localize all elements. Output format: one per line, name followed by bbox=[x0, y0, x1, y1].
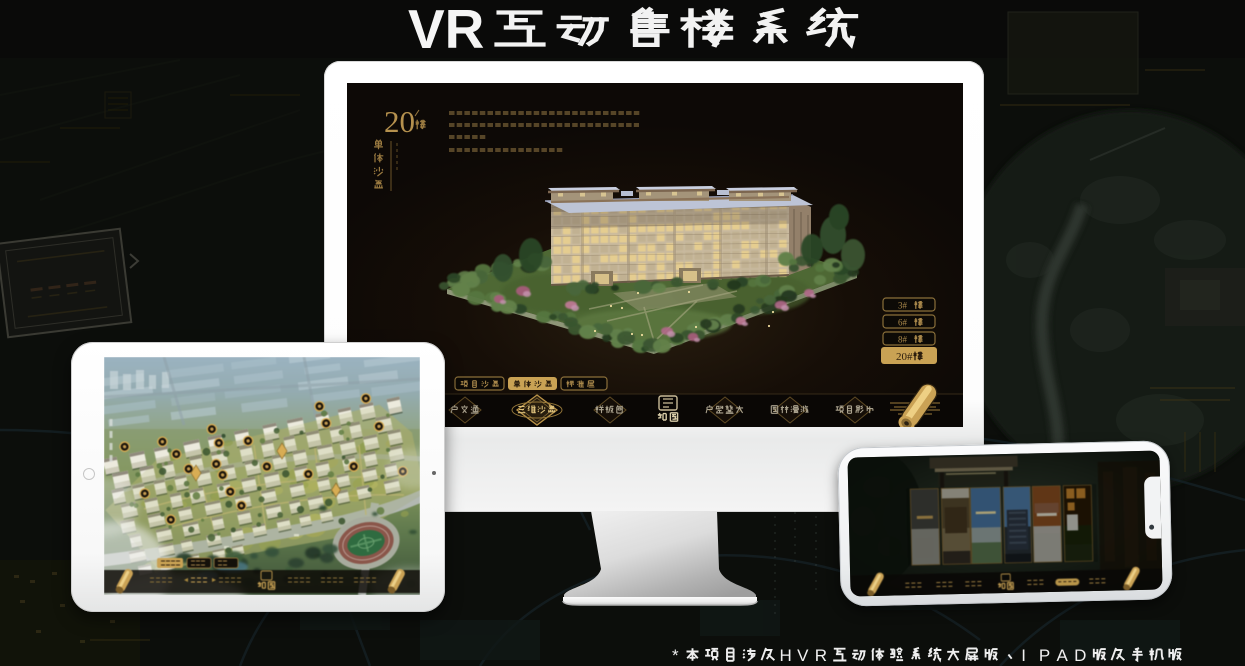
svg-text:I: I bbox=[1021, 646, 1026, 665]
svg-text:20#: 20# bbox=[896, 351, 913, 363]
svg-text:D: D bbox=[1074, 646, 1086, 665]
svg-text:V: V bbox=[797, 646, 809, 665]
svg-text:R: R bbox=[815, 646, 827, 665]
svg-text:H: H bbox=[780, 646, 792, 665]
svg-text:A: A bbox=[1057, 646, 1069, 665]
svg-text:6#: 6# bbox=[898, 318, 908, 328]
svg-text:3#: 3# bbox=[898, 301, 908, 311]
svg-text:20: 20 bbox=[384, 104, 415, 139]
svg-text:8#: 8# bbox=[898, 335, 908, 345]
svg-text:*: * bbox=[672, 646, 679, 665]
svg-text:P: P bbox=[1039, 646, 1050, 665]
svg-text:VR: VR bbox=[408, 0, 484, 60]
